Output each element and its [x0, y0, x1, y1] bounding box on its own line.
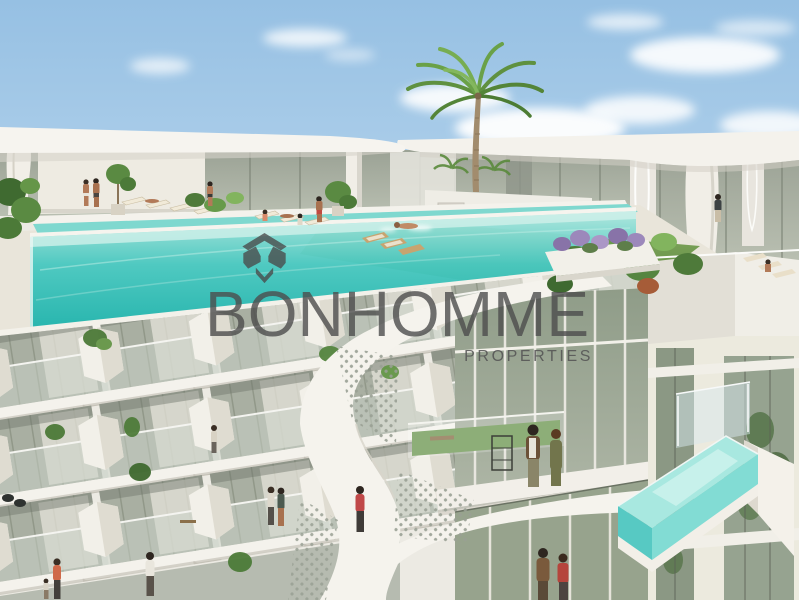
- render-image: BONHOMME PROPERTIES: [0, 0, 799, 600]
- building-scene: [0, 0, 799, 600]
- far-right-man: [715, 194, 722, 222]
